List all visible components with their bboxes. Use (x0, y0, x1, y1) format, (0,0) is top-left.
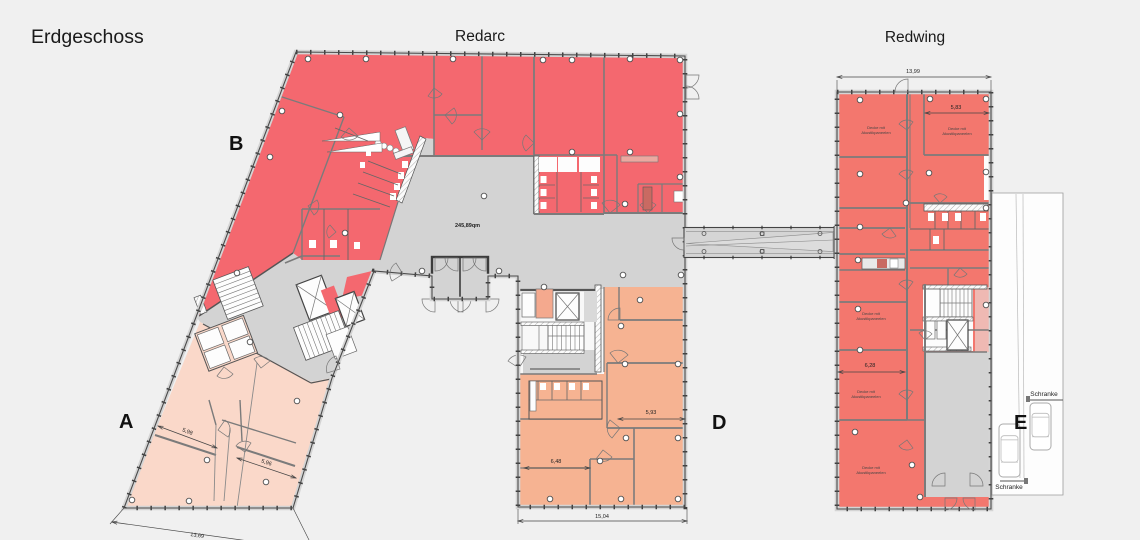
svg-text:B: B (229, 133, 243, 155)
svg-text:Akustikpaneelen: Akustikpaneelen (856, 470, 885, 475)
svg-text:Akustikpaneelen: Akustikpaneelen (856, 316, 885, 321)
svg-text:Akustikpaneelen: Akustikpaneelen (942, 131, 971, 136)
svg-text:A: A (119, 411, 133, 433)
svg-text:Schranke: Schranke (995, 484, 1023, 491)
svg-text:Akustikpaneelen: Akustikpaneelen (861, 130, 890, 135)
svg-text:D: D (712, 412, 726, 434)
svg-text:Schranke: Schranke (1030, 391, 1058, 398)
svg-text:5,93: 5,93 (646, 410, 657, 416)
svg-text:5,83: 5,83 (951, 105, 962, 111)
svg-text:245,89qm: 245,89qm (455, 223, 480, 229)
svg-text:Redarc: Redarc (455, 28, 505, 45)
svg-text:6,48: 6,48 (551, 459, 562, 465)
svg-text:Akustikpaneelen: Akustikpaneelen (851, 394, 880, 399)
svg-text:15,04: 15,04 (595, 514, 609, 520)
svg-text:6,28: 6,28 (865, 363, 876, 369)
svg-text:E: E (1014, 412, 1027, 434)
svg-text:13,99: 13,99 (906, 69, 920, 75)
svg-text:Erdgeschoss: Erdgeschoss (31, 26, 144, 48)
svg-text:Redwing: Redwing (885, 29, 945, 46)
